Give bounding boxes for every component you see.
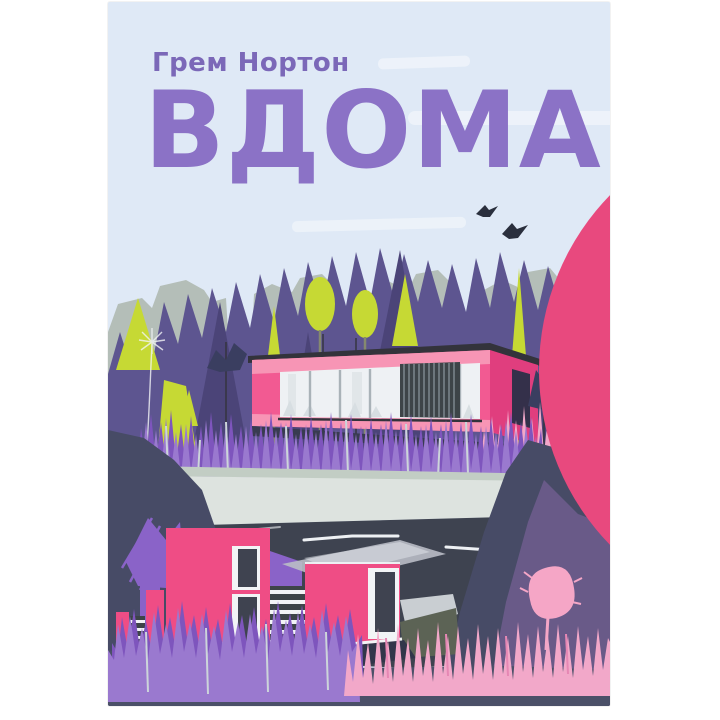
book-title: ВДОМА [144,82,602,180]
publisher-logo-icon [539,18,591,70]
side-door [512,369,530,428]
page: { "cover": { "author": "Грем Нортон", "t… [0,0,720,720]
book-cover: Грем Нортон ВДОМА [108,2,610,706]
